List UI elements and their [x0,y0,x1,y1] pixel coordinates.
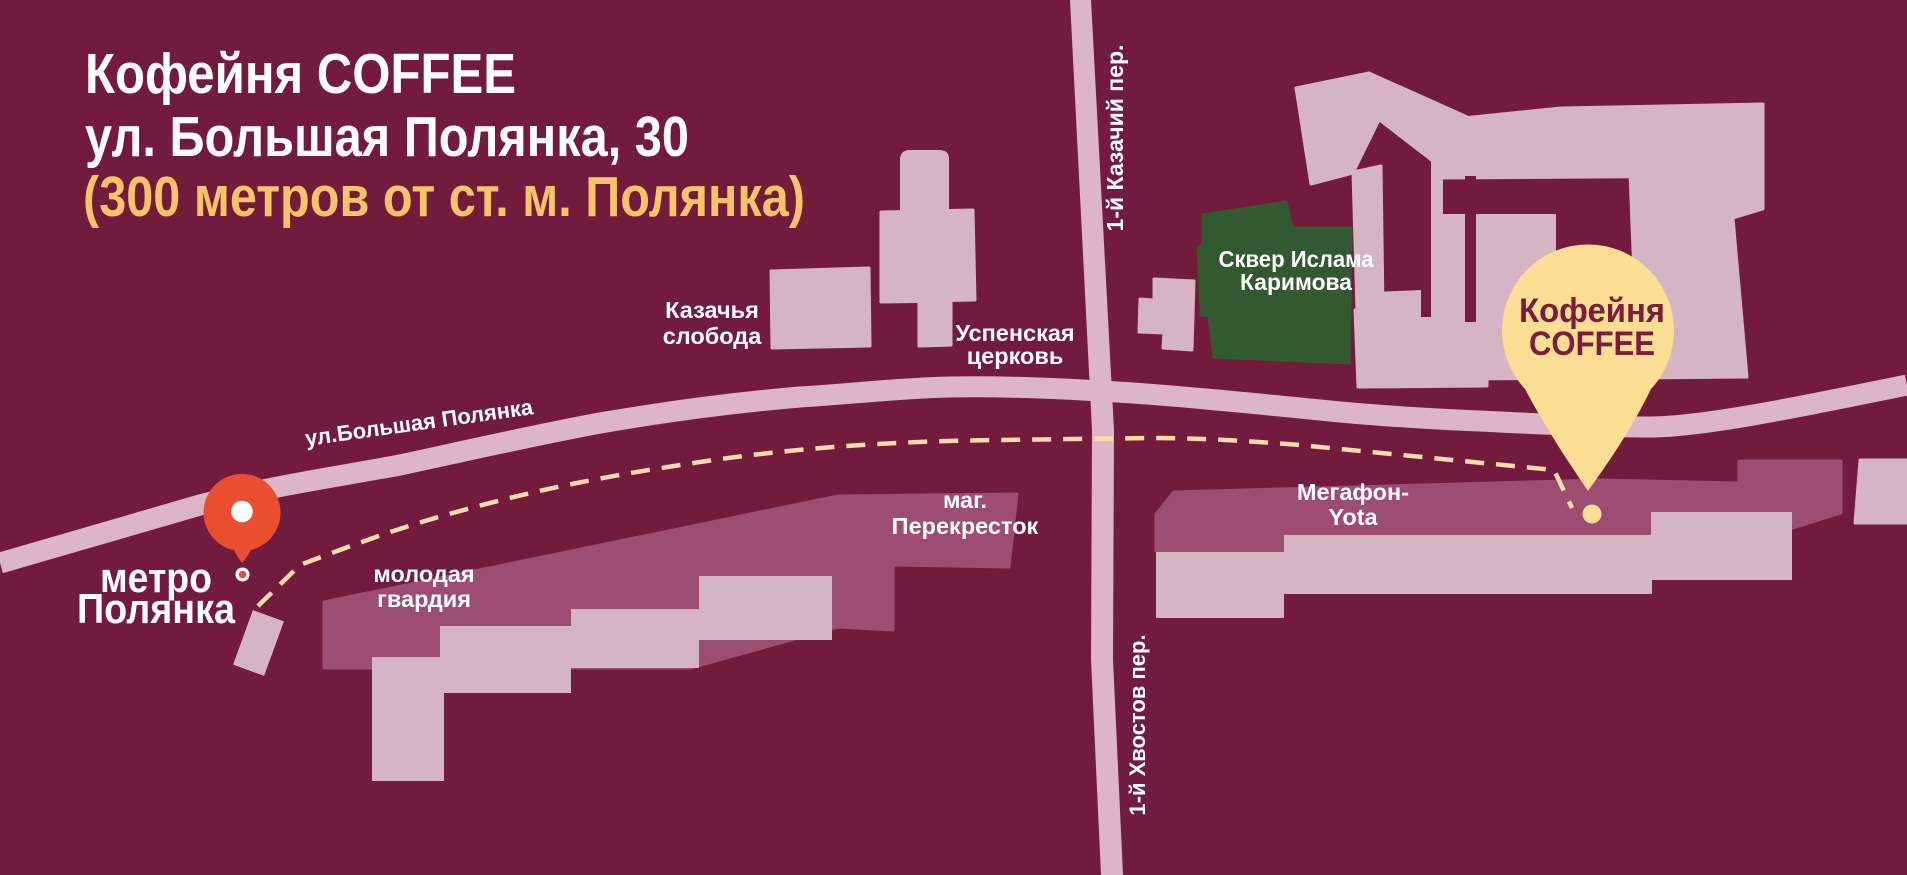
svg-text:COFFEE: COFFEE [1529,325,1655,363]
svg-text:Кофейня COFFEE: Кофейня COFFEE [85,42,516,106]
svg-text:слобода: слобода [663,323,763,349]
svg-text:маг.: маг. [943,487,987,513]
svg-text:(300 метров от ст. м. Полянка): (300 метров от ст. м. Полянка) [83,165,805,229]
svg-text:церковь: церковь [967,343,1064,369]
svg-text:1-й Казачий пер.: 1-й Казачий пер. [1102,45,1128,232]
svg-text:гвардия: гвардия [377,586,471,612]
svg-text:ул. Большая Полянка, 30: ул. Большая Полянка, 30 [85,105,689,169]
svg-text:Yota: Yota [1328,504,1378,530]
svg-text:Мегафон-: Мегафон- [1297,479,1409,505]
svg-text:Полянка: Полянка [77,585,236,632]
svg-text:Каримова: Каримова [1240,269,1353,295]
svg-text:молодая: молодая [373,561,474,587]
svg-text:1-й Хвостов пер.: 1-й Хвостов пер. [1125,634,1150,815]
svg-text:Казачья: Казачья [665,297,759,323]
svg-text:Перекресток: Перекресток [892,513,1039,539]
